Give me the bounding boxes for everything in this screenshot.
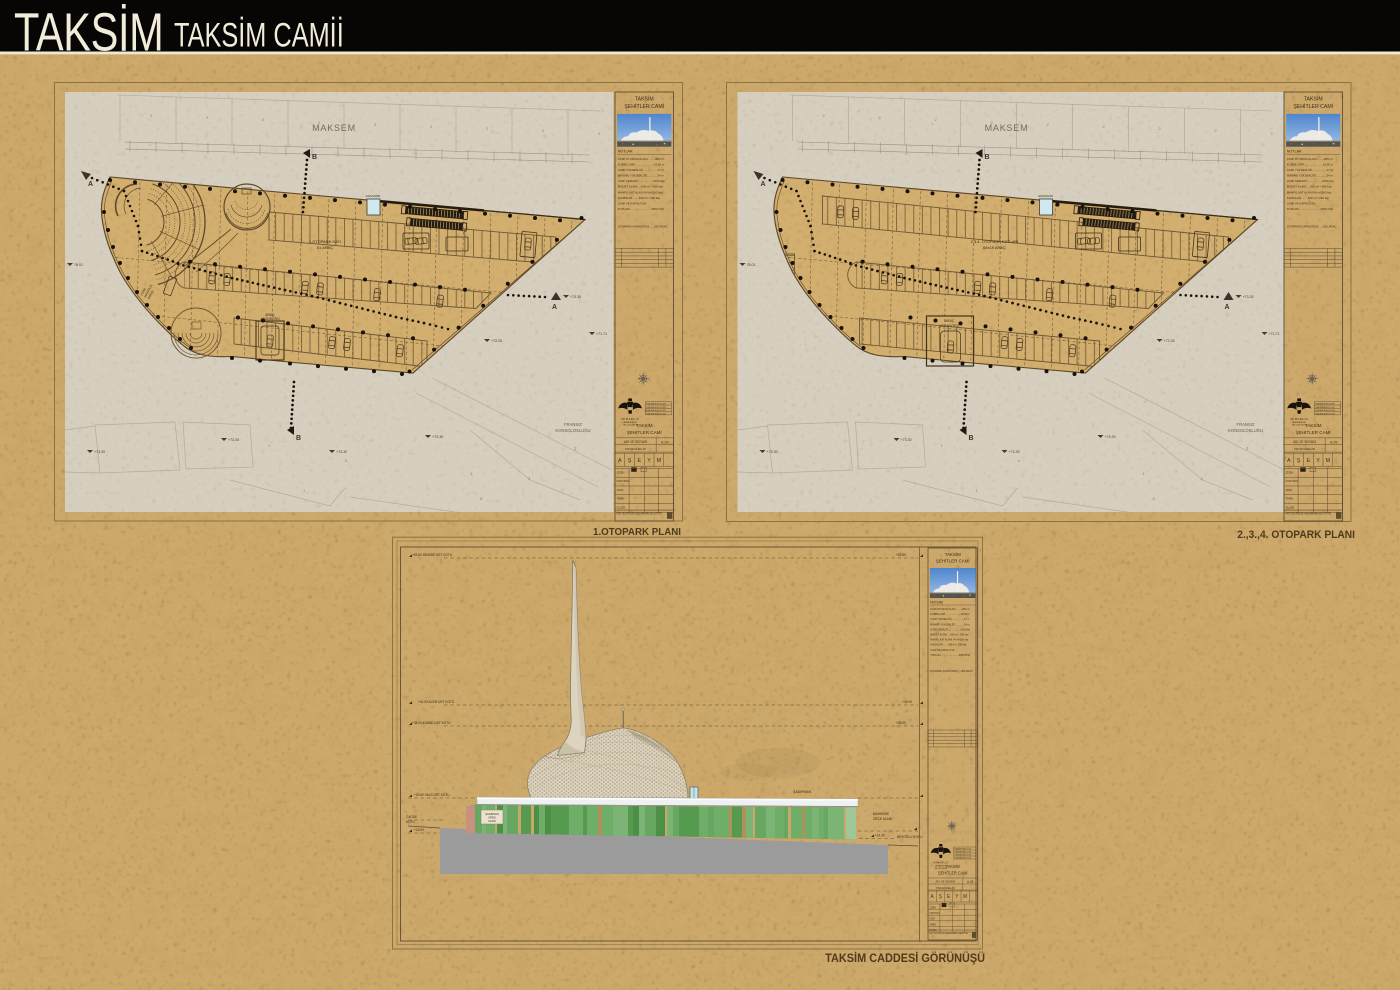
svg-text:NOTLAR: NOTLAR [618,150,633,154]
svg-text:ŞADIRVAN: ŞADIRVAN [485,812,499,816]
svg-text:ASANSÖRÜ: ASANSÖRÜ [940,324,960,328]
svg-text:A: A [1225,304,1230,311]
svg-text:İBADET ALANI.....693 m² / 950: İBADET ALANI.....693 m² / 950 kişi [1287,184,1332,189]
svg-text:M: M [657,458,662,464]
svg-text:ŞEHİTLER CAMİ: ŞEHİTLER CAMİ [936,557,970,563]
svg-text:+73.30: +73.30 [1105,435,1116,439]
svg-text:CAMİ YÜKSEKLİĞİ...............: CAMİ YÜKSEKLİĞİ..................17 m [618,167,665,172]
svg-text:Y: Y [647,458,651,464]
svg-text:ŞEHİTLER CAMİ: ŞEHİTLER CAMİ [627,429,662,435]
svg-text:NOT: BU PROJE HŞA MİMARLIĞA Aİ: NOT: BU PROJE HŞA MİMARLIĞA AİTTİR [617,512,662,515]
svg-text:ŞEHİTLER CAMİ: ŞEHİTLER CAMİ [624,103,664,110]
svg-text:78.01: 78.01 [747,263,756,267]
svg-text:+73.30: +73.30 [901,438,912,442]
svg-text:HŞA MİM.MÜH.LTD.ŞTİ: HŞA MİM.MÜH.LTD.ŞTİ [1315,412,1335,415]
svg-text:ADI VE SOYADI: ADI VE SOYADI [624,440,648,444]
svg-text:A: A [761,181,766,188]
svg-text:ONAY: ONAY [929,918,936,921]
svg-text:ONAY: ONAY [1286,488,1293,492]
svg-text:+71.71: +71.71 [1269,332,1280,336]
svg-text:51 ARAÇ: 51 ARAÇ [317,245,334,250]
svg-text:MİNARE YÜKSEKLİĞİ.............: MİNARE YÜKSEKLİĞİ.............54 m [1287,173,1334,178]
svg-text:+14.30: +14.30 [875,834,885,838]
svg-text:ŞEHİTLER CAMİ: ŞEHİTLER CAMİ [938,870,967,875]
svg-text:1.OTOPARK PLANI: 1.OTOPARK PLANI [593,527,681,538]
svg-text:+73.30: +73.30 [1009,450,1020,454]
svg-text:B: B [969,435,974,442]
svg-text:ARAÇ: ARAÇ [945,319,955,323]
svg-text:KOTU: KOTU [406,820,416,824]
svg-text:CAMİ CEMAATİ..................: CAMİ CEMAATİ..................1600 kişi [1287,178,1334,183]
svg-text:A.09: A.09 [967,880,974,884]
svg-text:ÖLÇEK: ÖLÇEK [1286,505,1295,509]
svg-text:OTOPARK KAPASİTESİ......265 AR: OTOPARK KAPASİTESİ......265 ARAÇ [618,224,668,229]
svg-text:+72.25: +72.25 [1164,339,1175,343]
svg-text:MAHFİL KAT ALANI 94 m²/260 kiş: MAHFİL KAT ALANI 94 m²/260 kişi [1287,189,1332,194]
svg-text:CAMİ CEMAATİ..................: CAMİ CEMAATİ..................1600 kişi [618,178,665,183]
svg-text:CAMİ OTURUM ALANI.........485: CAMİ OTURUM ALANI.........485 m² [618,156,664,161]
svg-text:E: E [638,458,642,464]
svg-text:ALANI: ALANI [488,819,496,823]
svg-text:+38.00: +38.00 [896,721,906,725]
svg-text:+41.09: +41.09 [902,700,912,704]
svg-text:FRANSIZ: FRANSIZ [564,422,582,427]
svg-text:HŞA MİM.MÜH.LTD.ŞTİ: HŞA MİM.MÜH.LTD.ŞTİ [646,403,666,406]
svg-text:B: B [296,435,301,442]
svg-text:MİNARE YÜKSEKLİĞİ.............: MİNARE YÜKSEKLİĞİ.............54 m [618,173,665,178]
svg-text:ŞADIRVAN: ŞADIRVAN [793,790,811,794]
svg-text:NOTLAR: NOTLAR [1287,150,1302,154]
svg-text:Y: Y [1316,458,1320,464]
svg-text:78.01: 78.01 [74,263,83,267]
svg-text:A: A [88,181,93,188]
svg-text:M: M [963,894,967,900]
svg-text:KUBBE ÇAPI....................: KUBBE ÇAPI.......................16,50 m [930,612,969,616]
svg-text:Ş: Ş [939,894,942,900]
svg-text:TOPLAM........................: TOPLAM...........................2500 Kİ… [618,206,665,211]
svg-text:HŞA MİM.MÜH.LTD.ŞTİ: HŞA MİM.MÜH.LTD.ŞTİ [1315,406,1335,409]
svg-text:NOT: BU PROJE HŞA MİMARLIĞA Aİ: NOT: BU PROJE HŞA MİMARLIĞA AİTTİR [1286,512,1331,515]
svg-text:ASANSÖR: ASANSÖR [1038,194,1054,198]
svg-text:+73.30: +73.30 [94,450,105,454]
svg-text:+73.30: +73.30 [1243,295,1254,299]
svg-text:ÇİZEN: ÇİZEN [929,906,936,909]
svg-text:TAKSİM: TAKSİM [636,422,653,428]
svg-text:NOT: BU PROJE HŞA MİMARLIĞA Aİ: NOT: BU PROJE HŞA MİMARLIĞA AİTTİR [929,932,968,935]
svg-text:KADINLAR........460 m² / 390 k: KADINLAR........460 m² / 390 kişi [1287,196,1330,200]
svg-text:+73.30: +73.30 [228,438,239,442]
svg-text:A.09: A.09 [1330,440,1338,444]
svg-text:M: M [1326,458,1331,464]
svg-text:Ş: Ş [628,458,632,464]
svg-text:2.3.4. OTOPARK KATLARI: 2.3.4. OTOPARK KATLARI [971,239,1019,244]
svg-text:B: B [985,154,990,161]
svg-text:ÖLÇEK: ÖLÇEK [929,929,937,932]
svg-text:+15.00: +15.00 [414,828,424,832]
svg-text:+41.09 ALEM ÜST KOTU: +41.09 ALEM ÜST KOTU [418,700,455,704]
svg-text:E: E [1307,458,1311,464]
svg-text:66x19 ARAÇ: 66x19 ARAÇ [983,245,1006,250]
svg-text:FRANSIZ: FRANSIZ [1237,422,1255,427]
svg-text:+73.30: +73.30 [336,450,347,454]
svg-text:TAKSİM CAMİİ: TAKSİM CAMİİ [174,17,344,54]
svg-text:CAMİ YÜKSEKLİĞİ...............: CAMİ YÜKSEKLİĞİ..................17 m [1287,167,1334,172]
svg-text:TAKSİM: TAKSİM [1305,422,1322,428]
svg-text:HŞA MİM.MÜH.LTD.ŞTİ: HŞA MİM.MÜH.LTD.ŞTİ [1315,409,1335,412]
svg-text:TOPLAM........................: TOPLAM...........................2500 Kİ… [1287,206,1334,211]
svg-text:ÖLÇEK: ÖLÇEK [617,505,626,509]
svg-text:MAHFİL KAT ALANI 94 m²/260 kiş: MAHFİL KAT ALANI 94 m²/260 kişi [618,189,663,194]
svg-text:+73.30: +73.30 [432,435,443,439]
svg-text:A: A [552,304,557,311]
svg-text:TAKSİM: TAKSİM [635,96,654,103]
svg-text:ONAY: ONAY [617,488,624,492]
svg-text:+20.50 VALS ÜST KOTU: +20.50 VALS ÜST KOTU [414,793,450,797]
svg-text:+72.25: +72.25 [491,339,502,343]
svg-text:B: B [312,154,317,161]
svg-text:ASANSÖR: ASANSÖR [366,194,382,198]
svg-text:HŞA MİM.MÜH.LTD.ŞTİ: HŞA MİM.MÜH.LTD.ŞTİ [646,409,666,412]
svg-text:OTOPARK KAPASİTESİ......265 AR: OTOPARK KAPASİTESİ......265 ARAÇ [1287,224,1337,229]
svg-text:KONSOLOSLUĞU: KONSOLOSLUĞU [555,428,590,433]
svg-text:A: A [618,458,622,464]
svg-text:CAMİ VE KAPALIYSA: CAMİ VE KAPALIYSA [618,200,647,205]
svg-text:KUBBE ÇAPI....................: KUBBE ÇAPI.......................16,50 m [618,162,665,166]
svg-text:HŞA MİM.MÜH.LTD.ŞTİ: HŞA MİM.MÜH.LTD.ŞTİ [646,412,666,415]
svg-text:PROJE MÜELLİFİ: PROJE MÜELLİFİ [937,887,955,890]
svg-text:TAKSİM CADDESİ GÖRÜNÜŞÜ: TAKSİM CADDESİ GÖRÜNÜŞÜ [825,952,985,965]
svg-text:1.OTOPARK KATI: 1.OTOPARK KATI [309,239,341,244]
svg-text:KONTROL: KONTROL [929,913,940,915]
svg-text:GEÇE ALANI: GEÇE ALANI [873,817,892,821]
svg-text:A.09: A.09 [661,440,669,444]
svg-text:E: E [947,894,950,900]
svg-text:CADDE: CADDE [406,815,417,819]
svg-text:İBADET ALANI.....693 m² / 950: İBADET ALANI.....693 m² / 950 kişi [618,184,663,189]
svg-text:TAKSİM: TAKSİM [945,551,961,557]
svg-text:HŞA MİM.MÜH.LTD.ŞTİ: HŞA MİM.MÜH.LTD.ŞTİ [646,406,666,409]
svg-text:CAMİ VE KAPALIYSA: CAMİ VE KAPALIYSA [1287,200,1316,205]
svg-text:MAHKEME: MAHKEME [873,812,889,816]
svg-text:ŞEHİTLER CAMİ: ŞEHİTLER CAMİ [1296,429,1331,435]
svg-text:KONTROL: KONTROL [617,479,630,483]
svg-text:A: A [1287,458,1291,464]
svg-text:+63.50 MİNARE ÜST KOTU: +63.50 MİNARE ÜST KOTU [412,552,453,557]
svg-text:TAKSİM: TAKSİM [1304,96,1323,103]
svg-text:2.,3.,4. OTOPARK PLANI: 2.,3.,4. OTOPARK PLANI [1237,529,1355,541]
svg-text:ADI VE SOYADI: ADI VE SOYADI [1293,440,1317,444]
svg-text:TAKSİM: TAKSİM [946,864,961,869]
svg-text:ADI VE SOYADI: ADI VE SOYADI [935,880,955,884]
svg-text:TARİH: TARİH [929,923,936,926]
svg-text:+63.50: +63.50 [896,553,906,557]
svg-text:KUBBE ÇAPI....................: KUBBE ÇAPI.......................16,50 m [1287,162,1334,166]
svg-text:+38.00 KUBBE ÜST KOTU: +38.00 KUBBE ÜST KOTU [412,721,451,725]
svg-text:+73.30: +73.30 [570,295,581,299]
svg-text:KADINLAR........460 m² / 390 k: KADINLAR........460 m² / 390 kişi [930,643,966,647]
svg-text:KADINLAR........460 m² / 390 k: KADINLAR........460 m² / 390 kişi [618,196,661,200]
svg-text:+71.71: +71.71 [596,332,607,336]
svg-text:TAKSİM: TAKSİM [14,2,163,63]
svg-text:KONSOLOSLUĞU: KONSOLOSLUĞU [1228,428,1263,433]
svg-text:ŞEHİTLER CAMİ: ŞEHİTLER CAMİ [1293,103,1333,110]
svg-text:NOTLAR: NOTLAR [930,600,943,604]
svg-text:+73.30: +73.30 [767,450,778,454]
svg-text:KONTROL: KONTROL [1286,479,1299,483]
svg-text:HŞA MİM.MÜH.LTD.ŞTİ: HŞA MİM.MÜH.LTD.ŞTİ [1315,403,1335,406]
svg-text:CAMİ OTURUM ALANI.........485: CAMİ OTURUM ALANI.........485 m² [1287,156,1333,161]
svg-text:Ş: Ş [1297,458,1301,464]
